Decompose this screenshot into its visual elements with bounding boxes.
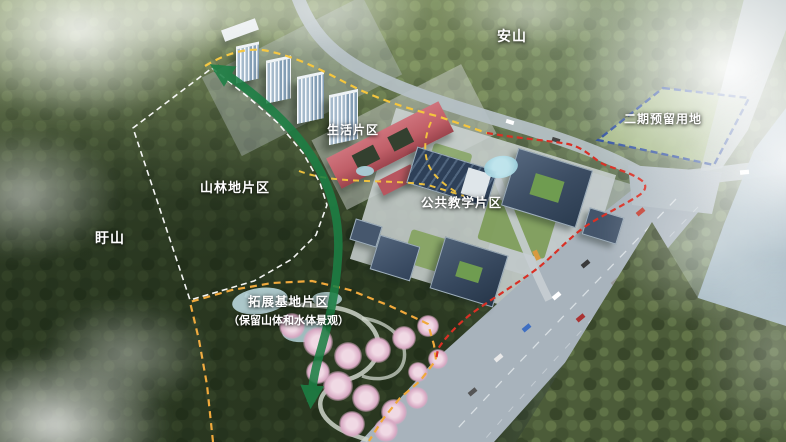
zone-label-expansion-title: 拓展基地片区 [248,295,329,309]
zone-label-living: 生活片区 [327,121,379,138]
zone-label-teaching: 公共教学片区 [421,192,502,211]
zone-label-forest: 山林地片区 [200,177,270,196]
zone-label-expansion: 拓展基地片区 （保留山体和水体景观） [228,291,349,328]
cloud [210,0,430,60]
living-boundary-connector [425,122,460,194]
mountain-label-xushan: 盱山 [95,228,125,248]
cloud [690,250,786,442]
cloud [440,0,620,50]
flow-arrow [216,68,338,402]
zone-label-phase2: 二期预留用地 [624,110,702,127]
zone-label-expansion-note: （保留山体和水体景观） [228,312,349,328]
masterplan-rendering: 安山 盱山 二期预留用地 生活片区 山林地片区 公共教学片区 拓展基地片区 （保… [0,0,786,442]
mountain-label-anshan: 安山 [497,26,527,46]
cloud [40,300,210,410]
